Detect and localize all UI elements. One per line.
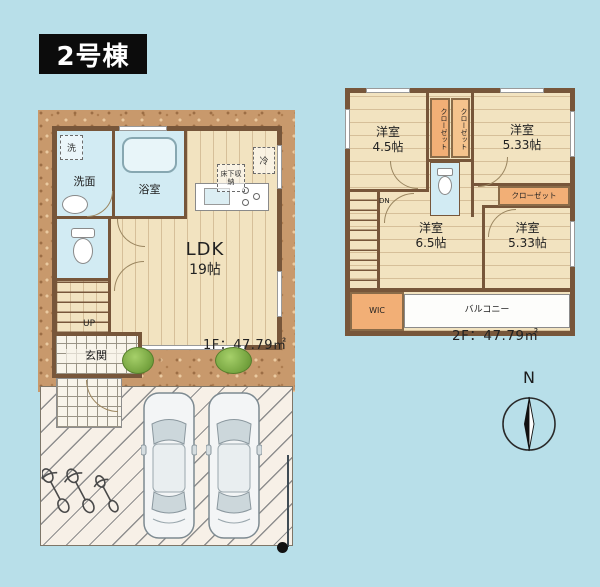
floorplan-canvas: 2号棟 洗 洗面 浴室 UP LDK 19帖 [0, 0, 600, 587]
room-se-size: 5.33帖 [485, 236, 570, 251]
fridge-box: 冷 [253, 147, 275, 174]
stairs-up-label: UP [83, 319, 95, 330]
washroom-label: 洗面 [57, 175, 112, 189]
stove-burner-icon [242, 199, 249, 206]
bathroom-label: 浴室 [115, 183, 184, 197]
toilet-bowl-icon [73, 238, 93, 264]
entrance-label: 玄関 [66, 349, 126, 363]
window [366, 88, 410, 93]
bush-icon [122, 347, 154, 374]
laundry-box: 洗 [60, 135, 83, 160]
stairs-down-label: DN [379, 197, 390, 206]
floor2-area-label: 2F：47.79㎡ [452, 324, 562, 344]
building-badge: 2号棟 [39, 34, 147, 74]
car-icon [206, 389, 262, 542]
bath-door-arc [117, 219, 145, 247]
ldk-size: 19帖 [160, 262, 250, 280]
room-nw-label: 洋室 4.5帖 [350, 125, 426, 155]
bathtub-icon [122, 137, 177, 173]
window [500, 88, 544, 93]
room-center-size: 6.5帖 [380, 236, 482, 251]
room-ne-name: 洋室 [474, 123, 570, 138]
wall [471, 93, 474, 217]
ldk-door-arc [114, 261, 144, 291]
room-nw-door-arc [390, 161, 418, 189]
sink-icon [62, 195, 88, 214]
compass-north-label: N [523, 368, 535, 387]
bush-icon [215, 347, 252, 374]
stove-burner-icon [253, 193, 260, 200]
room-ne-size: 5.33帖 [474, 138, 570, 153]
house-1f: 洗 洗面 浴室 UP LDK 19帖 冷 [52, 126, 282, 350]
floor1-area-label: 1F：47.79㎡ [203, 334, 303, 353]
window [345, 109, 350, 149]
window [570, 111, 575, 157]
balcony-label: バルコニー [465, 305, 510, 316]
ldk-label: LDK 19帖 [160, 239, 250, 279]
underfloor-storage-box: 床下収納 [217, 164, 245, 192]
toilet-tank-icon [71, 228, 95, 238]
room-center-label: 洋室 6.5帖 [380, 221, 482, 251]
room-se-door-arc [488, 209, 516, 237]
balcony: バルコニー [404, 294, 570, 328]
room-center-name: 洋室 [380, 221, 482, 236]
wall [426, 93, 429, 189]
ldk-name: LDK [160, 239, 250, 262]
window [277, 271, 282, 317]
house-2f: DN 洋室 4.5帖 洋室 5.33帖 クローゼット クローゼット クローゼット… [345, 88, 575, 336]
boundary-line [287, 455, 289, 547]
closet-b: クローゼット [451, 98, 470, 158]
car-icon [141, 389, 197, 542]
room-nw-size: 4.5帖 [350, 140, 426, 155]
toilet-bowl-icon [438, 176, 452, 195]
closet-c: クローゼット [498, 186, 570, 206]
toilet-room-1f [57, 219, 111, 281]
room-nw-name: 洋室 [350, 125, 426, 140]
closet-a: クローゼット [430, 98, 450, 158]
wic: WIC [350, 292, 404, 331]
window [277, 145, 282, 189]
bicycle-icons [42, 448, 120, 540]
window [570, 221, 575, 267]
stairs-2f [350, 189, 377, 291]
compass-icon: N [498, 366, 560, 462]
room-ne-label: 洋室 5.33帖 [474, 123, 570, 153]
toilet-tank-icon [437, 168, 453, 176]
toilet-room-2f [430, 162, 460, 216]
window [119, 126, 167, 131]
boundary-marker-dot [277, 542, 288, 553]
bathroom: 浴室 [115, 131, 187, 219]
